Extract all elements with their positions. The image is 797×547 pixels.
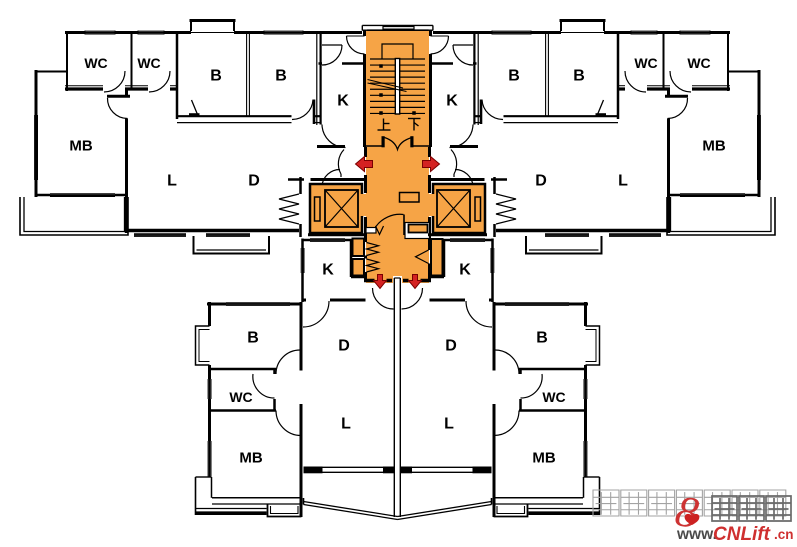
svg-text:WC: WC [84, 55, 107, 71]
svg-text:MB: MB [69, 138, 92, 155]
svg-text:B: B [508, 68, 520, 85]
svg-text:K: K [322, 262, 334, 279]
svg-text:D: D [535, 173, 547, 190]
svg-text:K: K [459, 262, 471, 279]
svg-text:D: D [445, 338, 457, 355]
svg-text:D: D [338, 338, 350, 355]
svg-text:L: L [167, 173, 177, 190]
svg-text:MB: MB [532, 450, 555, 467]
svg-text:L: L [444, 416, 454, 433]
svg-text:WC: WC [229, 389, 252, 405]
svg-text:D: D [248, 173, 260, 190]
svg-text:WC: WC [634, 55, 657, 71]
svg-text:MB: MB [239, 450, 262, 467]
svg-text:WC: WC [137, 55, 160, 71]
svg-text:L: L [341, 416, 351, 433]
svg-text:B: B [210, 68, 222, 85]
svg-text:CNLift: CNLift [713, 524, 771, 545]
svg-text:B: B [247, 330, 259, 347]
svg-text:B: B [275, 68, 287, 85]
svg-text:WC: WC [542, 389, 565, 405]
svg-text:K: K [446, 93, 458, 110]
svg-text:.cn: .cn [774, 527, 794, 542]
svg-text:www.: www. [676, 526, 717, 543]
svg-text:B: B [536, 330, 548, 347]
svg-text:L: L [618, 173, 628, 190]
svg-text:K: K [337, 93, 349, 110]
svg-text:MB: MB [702, 138, 725, 155]
svg-text:WC: WC [687, 55, 710, 71]
svg-text:B: B [573, 68, 585, 85]
